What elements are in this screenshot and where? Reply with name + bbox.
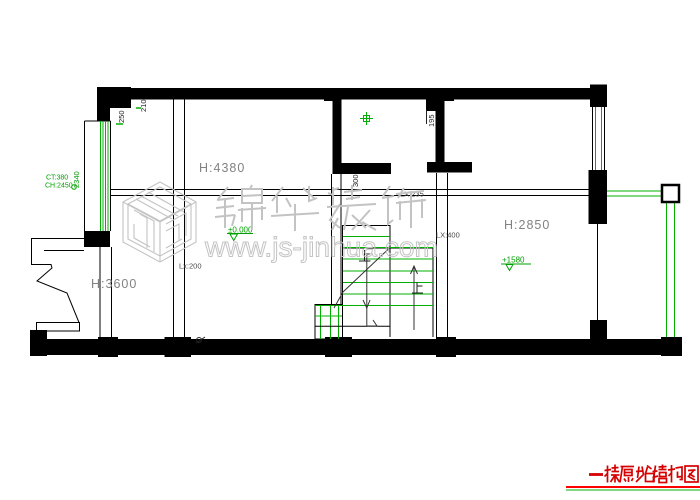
- svg-text:LX:400: LX:400: [436, 231, 460, 240]
- svg-text:210: 210: [139, 99, 148, 112]
- svg-text:CT:380: CT:380: [46, 175, 68, 182]
- svg-text:H:2850: H:2850: [504, 218, 550, 232]
- svg-text:H:3600: H:3600: [91, 277, 137, 291]
- svg-text:+1580: +1580: [502, 256, 525, 265]
- svg-text:H:4380: H:4380: [199, 161, 245, 175]
- svg-text:www.js-jinhua.com: www.js-jinhua.com: [204, 232, 438, 263]
- svg-text:CH:2450: CH:2450: [45, 183, 73, 190]
- svg-text:Lx:200: Lx:200: [179, 262, 202, 271]
- svg-text:2340: 2340: [72, 171, 81, 188]
- svg-text:195: 195: [427, 114, 436, 127]
- svg-text:250: 250: [117, 110, 126, 123]
